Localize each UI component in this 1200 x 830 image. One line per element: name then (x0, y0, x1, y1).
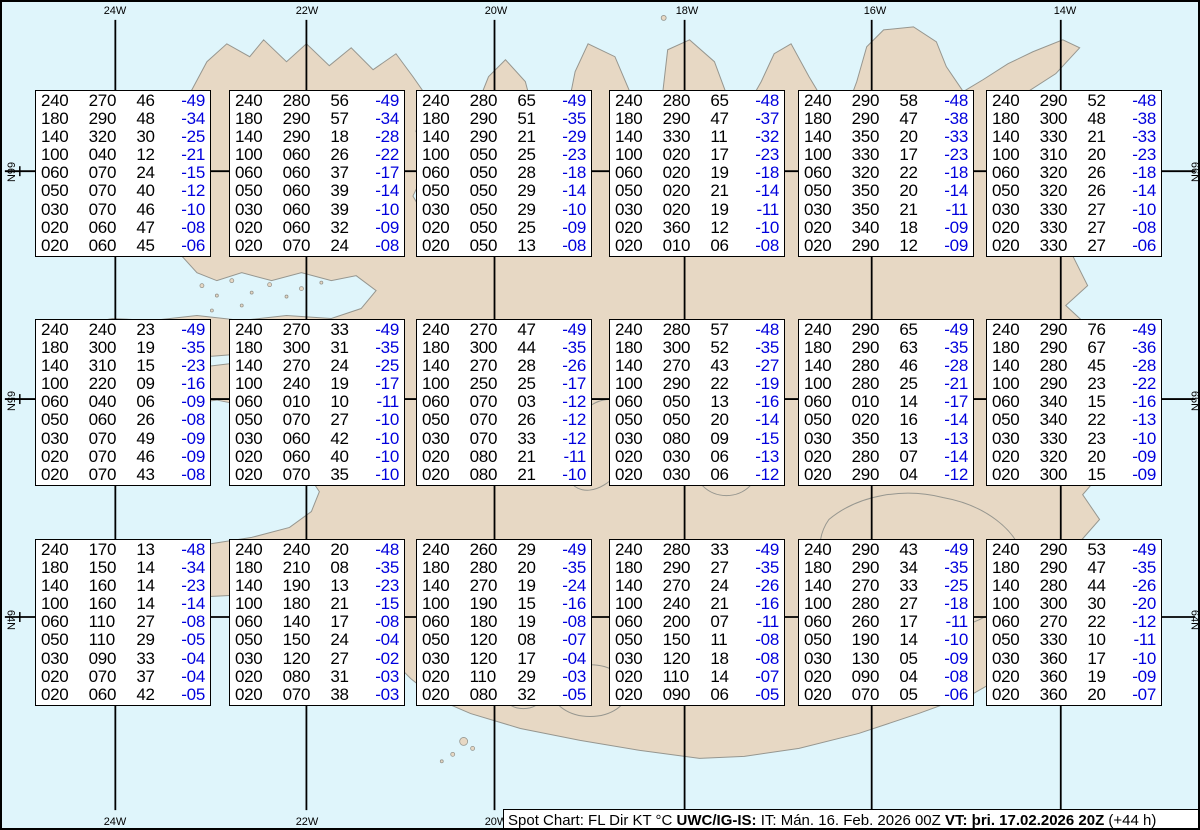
wind-direction-value: 010 (663, 237, 694, 255)
flight-level-value: 240 (992, 321, 1023, 339)
spot-row: 24029076-49 (992, 321, 1156, 339)
flight-level-value: 060 (992, 164, 1023, 182)
wind-speed-value: 29 (517, 182, 539, 200)
temperature-value: -25 (369, 357, 399, 375)
spot-data-box: 24017013-4818015014-3414016014-231001601… (35, 539, 211, 706)
longitude-label-top: 24W (104, 6, 127, 17)
temperature-value: -20 (1126, 595, 1156, 613)
flight-level-value: 240 (41, 541, 72, 559)
temperature-value: -10 (556, 201, 586, 219)
temperature-value: -10 (556, 466, 586, 484)
spot-row: 18029048-34 (41, 110, 205, 128)
spot-row: 18029067-36 (992, 339, 1156, 357)
wind-speed-value: 57 (710, 321, 732, 339)
wind-speed-value: 24 (330, 631, 352, 649)
wind-direction-value: 110 (470, 668, 501, 686)
spot-row: 05007040-12 (41, 182, 205, 200)
spot-row: 06034015-16 (992, 393, 1156, 411)
wind-speed-value: 25 (899, 375, 921, 393)
temperature-value: -26 (556, 357, 586, 375)
wind-direction-value: 070 (89, 448, 120, 466)
wind-speed-value: 24 (330, 237, 352, 255)
spot-row: 10025025-17 (422, 375, 586, 393)
spot-row: 14033021-33 (992, 128, 1156, 146)
wind-direction-value: 300 (1040, 466, 1071, 484)
wind-speed-value: 26 (517, 411, 539, 429)
flight-level-value: 030 (422, 430, 453, 448)
spot-row: 14019013-23 (235, 577, 399, 595)
temperature-value: -21 (175, 146, 205, 164)
temperature-value: -49 (1126, 541, 1156, 559)
temperature-value: -02 (369, 650, 399, 668)
temperature-value: -18 (749, 164, 779, 182)
flight-level-value: 180 (804, 559, 835, 577)
spot-row: 24028057-48 (615, 321, 779, 339)
latitude-label-right: 65N (1189, 391, 1200, 411)
wind-direction-value: 010 (852, 393, 883, 411)
spot-row: 18021008-35 (235, 559, 399, 577)
spot-row: 06001010-11 (235, 393, 399, 411)
status-bar-text: IT: Mán. 16. Feb. 2026 00Z (757, 812, 945, 829)
flight-level-value: 050 (41, 411, 72, 429)
spot-row: 02007005-06 (804, 686, 968, 704)
spot-row: 14027024-26 (615, 577, 779, 595)
flight-level-value: 180 (422, 110, 453, 128)
temperature-value: -23 (556, 146, 586, 164)
wind-direction-value: 290 (852, 237, 883, 255)
wind-speed-value: 06 (710, 448, 732, 466)
flight-level-value: 020 (422, 448, 453, 466)
wind-direction-value: 070 (89, 182, 120, 200)
flight-level-value: 060 (992, 613, 1023, 631)
wind-speed-value: 13 (517, 237, 539, 255)
wind-direction-value: 120 (283, 650, 314, 668)
wind-direction-value: 080 (283, 668, 314, 686)
temperature-value: -16 (749, 595, 779, 613)
wind-speed-value: 76 (1087, 321, 1109, 339)
temperature-value: -22 (1126, 375, 1156, 393)
temperature-value: -09 (938, 650, 968, 668)
wind-direction-value: 330 (1040, 201, 1071, 219)
spot-row: 14028044-26 (992, 577, 1156, 595)
wind-direction-value: 060 (283, 448, 314, 466)
spot-row: 03002019-11 (615, 201, 779, 219)
flight-level-value: 140 (804, 128, 835, 146)
spot-row: 06007024-15 (41, 164, 205, 182)
longitude-label-top: 18W (676, 6, 699, 17)
flight-level-value: 020 (422, 219, 453, 237)
flight-level-value: 060 (615, 164, 646, 182)
wind-direction-value: 240 (283, 375, 314, 393)
flight-level-value: 140 (992, 577, 1023, 595)
spot-row: 18029057-34 (235, 110, 399, 128)
wind-direction-value: 350 (852, 430, 883, 448)
wind-direction-value: 150 (283, 631, 314, 649)
wind-speed-value: 23 (1087, 375, 1109, 393)
spot-row: 24029053-49 (992, 541, 1156, 559)
flight-level-value: 020 (41, 237, 72, 255)
temperature-value: -49 (749, 541, 779, 559)
wind-speed-value: 52 (710, 339, 732, 357)
temperature-value: -48 (938, 92, 968, 110)
wind-speed-value: 25 (517, 219, 539, 237)
flight-level-value: 030 (235, 201, 266, 219)
spot-row: 05015011-08 (615, 631, 779, 649)
flight-level-value: 050 (992, 631, 1023, 649)
wind-speed-value: 17 (1087, 650, 1109, 668)
temperature-value: -14 (369, 182, 399, 200)
flight-level-value: 020 (992, 668, 1023, 686)
wind-speed-value: 27 (1087, 237, 1109, 255)
spot-data-box: 24028033-4918029027-3514027024-261002402… (609, 539, 785, 706)
spot-row: 02006047-08 (41, 219, 205, 237)
temperature-value: -09 (938, 219, 968, 237)
spot-row: 02008032-05 (422, 686, 586, 704)
flight-level-value: 020 (992, 219, 1023, 237)
wind-speed-value: 09 (136, 375, 158, 393)
wind-speed-value: 45 (136, 237, 158, 255)
temperature-value: -08 (369, 613, 399, 631)
spot-row: 05012008-07 (422, 631, 586, 649)
spot-data-box: 24029065-4918029063-3514028046-281002802… (798, 319, 974, 486)
wind-direction-value: 070 (283, 686, 314, 704)
spot-row: 06018019-08 (422, 613, 586, 631)
flight-level-value: 050 (804, 631, 835, 649)
flight-level-value: 240 (41, 321, 72, 339)
temperature-value: -13 (1126, 411, 1156, 429)
spot-data-box: 24029076-4918029067-3614028045-281002902… (986, 319, 1162, 486)
spot-row: 18030031-35 (235, 339, 399, 357)
flight-level-value: 060 (422, 164, 453, 182)
temperature-value: -03 (556, 668, 586, 686)
spot-row: 05002021-14 (615, 182, 779, 200)
flight-level-value: 020 (615, 219, 646, 237)
wind-direction-value: 290 (1040, 559, 1071, 577)
wind-direction-value: 340 (852, 219, 883, 237)
flight-level-value: 020 (992, 448, 1023, 466)
wind-direction-value: 020 (663, 164, 694, 182)
wind-speed-value: 33 (330, 321, 352, 339)
wind-speed-value: 24 (710, 577, 732, 595)
spot-row: 03006042-10 (235, 430, 399, 448)
spot-row: 05007027-10 (235, 411, 399, 429)
flight-level-value: 060 (804, 613, 835, 631)
temperature-value: -07 (1126, 686, 1156, 704)
wind-direction-value: 030 (663, 466, 694, 484)
wind-speed-value: 33 (517, 430, 539, 448)
spot-data-box: 24029053-4918029047-3514028044-261003003… (986, 539, 1162, 706)
wind-speed-value: 21 (330, 595, 352, 613)
spot-row: 18028020-35 (422, 559, 586, 577)
wind-speed-value: 06 (710, 237, 732, 255)
temperature-value: -10 (369, 411, 399, 429)
spot-row: 14028046-28 (804, 357, 968, 375)
wind-speed-value: 33 (899, 577, 921, 595)
temperature-value: -18 (556, 164, 586, 182)
spot-row: 24028065-49 (422, 92, 586, 110)
flight-level-value: 060 (41, 164, 72, 182)
wind-direction-value: 180 (283, 595, 314, 613)
spot-row: 14028045-28 (992, 357, 1156, 375)
temperature-value: -08 (369, 237, 399, 255)
spot-row: 02006040-10 (235, 448, 399, 466)
temperature-value: -03 (369, 686, 399, 704)
wind-direction-value: 280 (852, 448, 883, 466)
spot-row: 02011029-03 (422, 668, 586, 686)
wind-direction-value: 280 (1040, 577, 1071, 595)
flight-level-value: 050 (615, 182, 646, 200)
spot-row: 02033027-08 (992, 219, 1156, 237)
wind-direction-value: 110 (89, 631, 120, 649)
temperature-value: -14 (938, 411, 968, 429)
temperature-value: -04 (556, 650, 586, 668)
wind-speed-value: 47 (1087, 559, 1109, 577)
temperature-value: -10 (175, 201, 205, 219)
spot-row: 18015014-34 (41, 559, 205, 577)
wind-direction-value: 150 (89, 559, 120, 577)
temperature-value: -14 (938, 182, 968, 200)
temperature-value: -08 (1126, 219, 1156, 237)
wind-direction-value: 050 (663, 411, 694, 429)
temperature-value: -18 (1126, 164, 1156, 182)
wind-direction-value: 150 (663, 631, 694, 649)
wind-speed-value: 44 (1087, 577, 1109, 595)
flight-level-value: 020 (804, 237, 835, 255)
spot-row: 24027046-49 (41, 92, 205, 110)
wind-direction-value: 080 (470, 686, 501, 704)
flight-level-value: 030 (615, 430, 646, 448)
wind-speed-value: 65 (899, 321, 921, 339)
temperature-value: -23 (1126, 146, 1156, 164)
latitude-label-left: 66N (5, 162, 16, 182)
wind-speed-value: 23 (136, 321, 158, 339)
temperature-value: -08 (749, 650, 779, 668)
spot-data-box: 24029058-4818029047-3814035020-331003301… (798, 90, 974, 257)
temperature-value: -32 (749, 128, 779, 146)
wind-direction-value: 270 (470, 577, 501, 595)
wind-direction-value: 320 (852, 164, 883, 182)
wind-speed-value: 46 (136, 92, 158, 110)
flight-level-value: 030 (804, 201, 835, 219)
spot-row: 05007026-12 (422, 411, 586, 429)
flight-level-value: 020 (804, 466, 835, 484)
flight-level-value: 020 (235, 686, 266, 704)
wind-direction-value: 210 (283, 559, 314, 577)
wind-direction-value: 090 (663, 686, 694, 704)
flight-level-value: 060 (615, 393, 646, 411)
spot-row: 14027043-27 (615, 357, 779, 375)
spot-row: 18029063-35 (804, 339, 968, 357)
wind-speed-value: 19 (517, 613, 539, 631)
temperature-value: -08 (175, 219, 205, 237)
wind-speed-value: 09 (710, 430, 732, 448)
wind-speed-value: 52 (1087, 92, 1109, 110)
flight-level-value: 240 (615, 92, 646, 110)
wind-speed-value: 22 (710, 375, 732, 393)
wind-speed-value: 17 (710, 146, 732, 164)
spot-row: 06006037-17 (235, 164, 399, 182)
wind-speed-value: 19 (330, 375, 352, 393)
wind-direction-value: 280 (852, 595, 883, 613)
flight-level-value: 030 (422, 650, 453, 668)
flight-level-value: 020 (804, 686, 835, 704)
temperature-value: -12 (938, 466, 968, 484)
temperature-value: -12 (175, 182, 205, 200)
wind-speed-value: 06 (710, 466, 732, 484)
spot-row: 18030048-38 (992, 110, 1156, 128)
wind-speed-value: 14 (136, 595, 158, 613)
flight-level-value: 030 (235, 650, 266, 668)
wind-speed-value: 25 (517, 146, 539, 164)
temperature-value: -04 (369, 631, 399, 649)
spot-row: 02003006-12 (615, 466, 779, 484)
temperature-value: -14 (175, 595, 205, 613)
temperature-value: -38 (1126, 110, 1156, 128)
spot-row: 24026029-49 (422, 541, 586, 559)
flight-level-value: 140 (615, 577, 646, 595)
wind-speed-value: 12 (899, 237, 921, 255)
temperature-value: -11 (938, 613, 968, 631)
latitude-label-left: 65N (5, 391, 16, 411)
spot-data-box: 24027033-4918030031-3514027024-251002401… (229, 319, 405, 486)
flight-level-value: 140 (422, 357, 453, 375)
flight-level-value: 240 (235, 541, 266, 559)
wind-direction-value: 070 (283, 466, 314, 484)
spot-row: 02007046-09 (41, 448, 205, 466)
wind-direction-value: 070 (89, 164, 120, 182)
temperature-value: -23 (938, 146, 968, 164)
temperature-value: -27 (749, 357, 779, 375)
spot-row: 05019014-10 (804, 631, 968, 649)
wind-direction-value: 270 (283, 321, 314, 339)
flight-level-value: 240 (422, 321, 453, 339)
temperature-value: -26 (1126, 577, 1156, 595)
flight-level-value: 180 (235, 110, 266, 128)
wind-direction-value: 050 (663, 393, 694, 411)
wind-direction-value: 300 (1040, 595, 1071, 613)
spot-row: 06011027-08 (41, 613, 205, 631)
spot-row: 02005013-08 (422, 237, 586, 255)
temperature-value: -09 (175, 430, 205, 448)
wind-direction-value: 270 (663, 357, 694, 375)
spot-row: 03012018-08 (615, 650, 779, 668)
temperature-value: -04 (175, 668, 205, 686)
flight-level-value: 020 (422, 237, 453, 255)
spot-row: 03007049-09 (41, 430, 205, 448)
spot-row: 03009033-04 (41, 650, 205, 668)
wind-direction-value: 290 (1040, 541, 1071, 559)
wind-direction-value: 170 (89, 541, 120, 559)
flight-level-value: 050 (615, 411, 646, 429)
temperature-value: -49 (175, 92, 205, 110)
spot-row: 03006039-10 (235, 201, 399, 219)
wind-speed-value: 20 (517, 559, 539, 577)
flight-level-value: 140 (41, 577, 72, 595)
wind-direction-value: 030 (663, 448, 694, 466)
temperature-value: -14 (749, 411, 779, 429)
longitude-label-bottom: 24W (104, 817, 127, 828)
spot-row: 24024020-48 (235, 541, 399, 559)
wind-direction-value: 190 (852, 631, 883, 649)
temperature-value: -48 (369, 541, 399, 559)
latitude-label-left: 64N (5, 610, 16, 630)
spot-row: 05006026-08 (41, 411, 205, 429)
wind-direction-value: 120 (470, 631, 501, 649)
temperature-value: -09 (1126, 466, 1156, 484)
wind-direction-value: 190 (470, 595, 501, 613)
temperature-value: -08 (556, 613, 586, 631)
flight-level-value: 140 (41, 357, 72, 375)
spot-row: 02003006-13 (615, 448, 779, 466)
wind-direction-value: 300 (1040, 110, 1071, 128)
spot-row: 03035021-11 (804, 201, 968, 219)
wind-direction-value: 120 (663, 650, 694, 668)
temperature-value: -49 (175, 321, 205, 339)
wind-direction-value: 060 (283, 146, 314, 164)
wind-speed-value: 26 (330, 146, 352, 164)
wind-speed-value: 13 (330, 577, 352, 595)
flight-level-value: 050 (422, 411, 453, 429)
wind-speed-value: 31 (330, 668, 352, 686)
wind-direction-value: 340 (1040, 393, 1071, 411)
wind-direction-value: 290 (852, 466, 883, 484)
wind-speed-value: 51 (517, 110, 539, 128)
spot-row: 05034022-13 (992, 411, 1156, 429)
wind-speed-value: 47 (899, 110, 921, 128)
wind-speed-value: 08 (517, 631, 539, 649)
temperature-value: -33 (1126, 128, 1156, 146)
temperature-value: -36 (1126, 339, 1156, 357)
spot-row: 10024019-17 (235, 375, 399, 393)
temperature-value: -25 (175, 128, 205, 146)
flight-level-value: 020 (235, 448, 266, 466)
spot-row: 02008021-10 (422, 466, 586, 484)
spot-row: 24029043-49 (804, 541, 968, 559)
temperature-value: -16 (175, 375, 205, 393)
wind-speed-value: 04 (899, 668, 921, 686)
wind-direction-value: 270 (283, 357, 314, 375)
wind-direction-value: 270 (470, 321, 501, 339)
wind-direction-value: 330 (1040, 631, 1071, 649)
flight-level-value: 030 (41, 430, 72, 448)
spot-row: 02011014-07 (615, 668, 779, 686)
flight-level-value: 020 (41, 448, 72, 466)
flight-level-value: 060 (992, 393, 1023, 411)
wind-speed-value: 39 (330, 201, 352, 219)
wind-direction-value: 320 (1040, 448, 1071, 466)
temperature-value: -11 (938, 201, 968, 219)
spot-row: 14027019-24 (422, 577, 586, 595)
flight-level-value: 020 (235, 668, 266, 686)
wind-direction-value: 290 (1040, 375, 1071, 393)
temperature-value: -08 (556, 237, 586, 255)
wind-speed-value: 22 (1087, 613, 1109, 631)
temperature-value: -12 (556, 411, 586, 429)
temperature-value: -49 (556, 541, 586, 559)
spot-row: 05015024-04 (235, 631, 399, 649)
temperature-value: -33 (938, 128, 968, 146)
wind-direction-value: 270 (852, 577, 883, 595)
spot-row: 02007024-08 (235, 237, 399, 255)
spot-row: 05035020-14 (804, 182, 968, 200)
wind-speed-value: 65 (710, 92, 732, 110)
temperature-value: -35 (556, 110, 586, 128)
wind-direction-value: 360 (1040, 686, 1071, 704)
temperature-value: -12 (556, 430, 586, 448)
wind-speed-value: 19 (136, 339, 158, 357)
status-bar-text: (+44 h) (1104, 812, 1156, 829)
spot-row: 10002017-23 (615, 146, 779, 164)
